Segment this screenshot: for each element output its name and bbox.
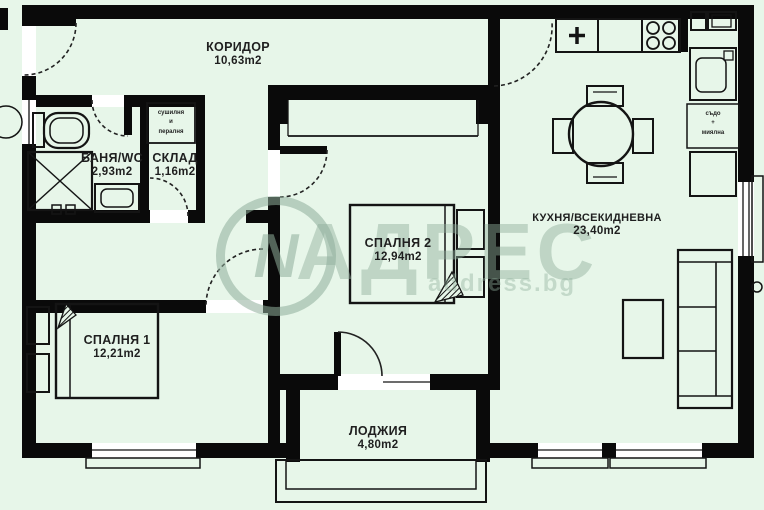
- kitchen-fixtures: [556, 12, 739, 196]
- burner: [663, 22, 675, 34]
- window-sill: [86, 458, 200, 468]
- kitchen-unit-basin: [696, 58, 726, 92]
- loggia-railing-inner: [286, 460, 476, 489]
- room-name: ЛОДЖИЯ: [349, 424, 407, 438]
- burner: [647, 37, 659, 49]
- entrance-opening: [22, 26, 36, 76]
- room-label-lodzhiya: ЛОДЖИЯ 4,80m2: [320, 424, 436, 452]
- faucet-cross-icon: [569, 27, 585, 44]
- room-area: 23,40m2: [512, 225, 682, 239]
- room-label-kuhnya: КУХНЯ/ВСЕКИДНЕВНА 23,40m2: [512, 212, 682, 239]
- loggia-door-leaf: [334, 332, 341, 376]
- room-name: БАНЯ/WC: [81, 151, 143, 165]
- loggia-door-opening: [338, 374, 383, 390]
- kitchen-unit: [690, 152, 736, 196]
- storage-door-opening: [150, 210, 188, 223]
- room-area: 10,63m2: [183, 55, 293, 69]
- dining-set: [553, 86, 653, 183]
- doors: [24, 19, 552, 376]
- dishwasher-line: съдо: [687, 110, 739, 119]
- loggia-railing-outer: [276, 460, 486, 502]
- dishwasher-line: +: [687, 119, 739, 128]
- room-area: 12,94m2: [340, 251, 456, 265]
- coffee-table: [623, 300, 663, 358]
- loggia-door-arc: [338, 332, 382, 376]
- wall-segment: [22, 19, 36, 443]
- room-label-sklad: СКЛАД 1,16m2: [146, 151, 204, 179]
- bath-door-opening: [92, 95, 126, 107]
- room-area: 4,80m2: [320, 439, 436, 453]
- exterior-pipe-symbol: [0, 106, 22, 138]
- room-name: КОРИДОР: [206, 40, 270, 54]
- wall-segment: [268, 85, 280, 443]
- loggia-wall: [286, 390, 300, 462]
- bedroom2-furniture: [288, 100, 484, 303]
- entrance-door-leaf: [24, 19, 76, 26]
- living-furniture: [623, 250, 732, 408]
- wall-segment: [0, 8, 8, 30]
- room-area: 1,16m2: [146, 166, 204, 180]
- room-label-spalnya1: СПАЛНЯ 1 12,21m2: [59, 333, 175, 361]
- room-name: СПАЛНЯ 1: [84, 333, 151, 347]
- dining-table: [569, 102, 633, 166]
- nightstand: [457, 210, 484, 249]
- room-name: КУХНЯ/ВСЕКИДНЕВНА: [532, 212, 662, 224]
- kitchen-door-arc: [494, 22, 552, 86]
- bath-door-leaf: [124, 95, 132, 135]
- room-label-spalnya2: СПАЛНЯ 2 12,94m2: [340, 236, 456, 264]
- kitchen-unit-tap: [724, 51, 733, 60]
- wall-segment: [488, 19, 500, 89]
- wall-segment: [22, 5, 738, 19]
- window-sill: [532, 458, 608, 468]
- dishwasher-line: миялна: [687, 129, 739, 138]
- kitchen-counter: [598, 19, 642, 52]
- room-name: СПАЛНЯ 2: [365, 236, 432, 250]
- bedroom2-door-leaf: [280, 146, 327, 154]
- bedroom2-door-arc: [280, 150, 327, 197]
- laundry-line: и: [147, 118, 195, 127]
- loggia-wall: [476, 390, 490, 462]
- room-name: СКЛАД: [152, 151, 197, 165]
- wall-segment: [280, 374, 338, 390]
- wall-segment: [268, 85, 500, 100]
- wall-segment: [268, 100, 288, 124]
- wall-segment: [430, 374, 500, 390]
- laundry-label: сушилня и пералня: [147, 109, 195, 137]
- room-area: 12,21m2: [59, 348, 175, 362]
- wall-segment: [488, 100, 500, 376]
- room-label-koridor: КОРИДОР 10,63m2: [183, 40, 293, 68]
- bedroom1-door-opening: [206, 300, 263, 313]
- laundry-line: пералня: [147, 128, 195, 137]
- dishwasher-label: съдо + миялна: [687, 110, 739, 138]
- window-sill: [610, 458, 706, 468]
- toilet-bowl-inner: [50, 118, 83, 143]
- burner: [663, 37, 675, 49]
- floor-plan: N АДРЕС address.bg КОРИДОР 10,63m2 БАНЯ/…: [0, 0, 764, 510]
- laundry-line: сушилня: [147, 109, 195, 118]
- bedroom2-door-opening: [268, 150, 280, 197]
- burner: [647, 22, 659, 34]
- bedroom1-door-arc: [206, 249, 263, 306]
- chair: [633, 119, 653, 153]
- bath-sink-basin: [101, 189, 133, 207]
- sofa: [678, 250, 732, 408]
